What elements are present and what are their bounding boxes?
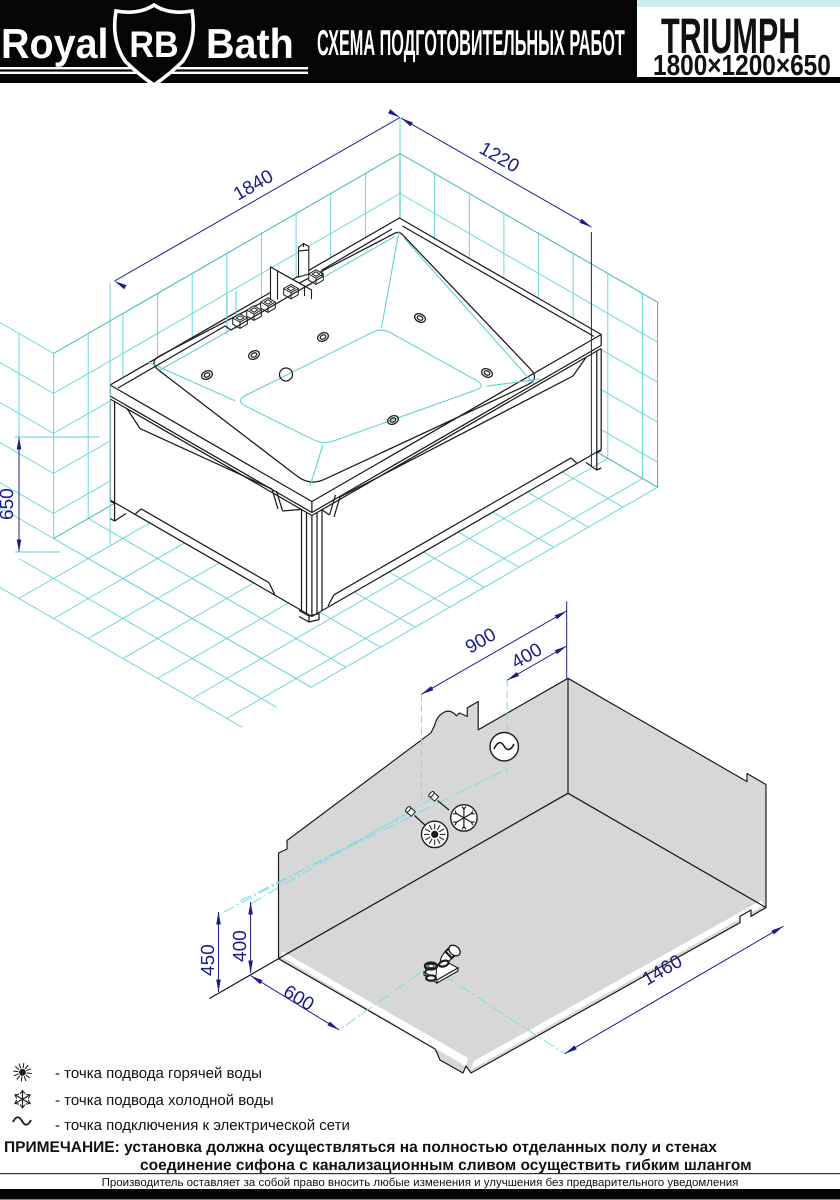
svg-text:Bath: Bath	[206, 20, 294, 67]
svg-text:- точка подвода холодной воды: - точка подвода холодной воды	[55, 1092, 274, 1109]
svg-text:RB: RB	[129, 24, 178, 65]
svg-text:СХЕМА ПОДГОТОВИТЕЛЬНЫХ РАБОТ: СХЕМА ПОДГОТОВИТЕЛЬНЫХ РАБОТ	[317, 22, 625, 63]
svg-text:- точка подключения к электрич: - точка подключения к электрической сети	[55, 1117, 350, 1134]
svg-text:450: 450	[198, 944, 219, 976]
svg-text:400: 400	[230, 930, 251, 962]
svg-text:Royal: Royal	[1, 20, 109, 67]
svg-text:1800×1200×650: 1800×1200×650	[653, 50, 831, 82]
svg-text:Производитель оставляет за соб: Производитель оставляет за собой право в…	[102, 1177, 739, 1189]
svg-text:- точка подвода горячей воды: - точка подвода горячей воды	[55, 1065, 262, 1082]
svg-text:соединение сифона с канализаци: соединение сифона с канализационным слив…	[140, 1157, 752, 1174]
svg-text:650: 650	[0, 488, 18, 520]
svg-text:ПРИМЕЧАНИЕ: установка должна о: ПРИМЕЧАНИЕ: установка должна осуществлят…	[4, 1139, 717, 1156]
